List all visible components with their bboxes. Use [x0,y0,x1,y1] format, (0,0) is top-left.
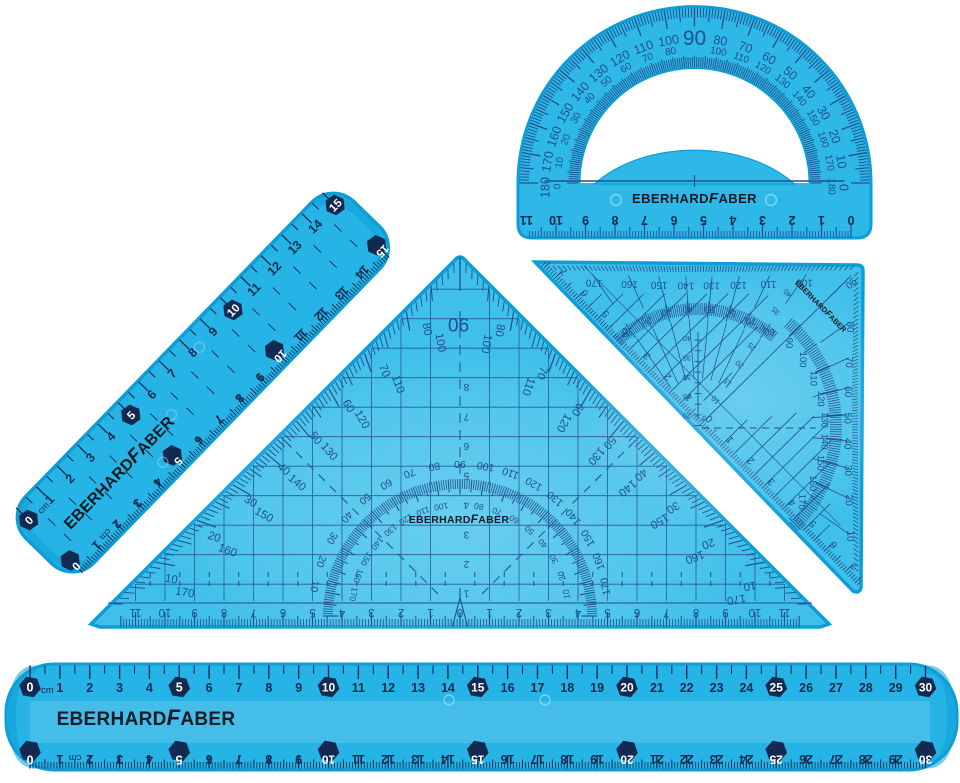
svg-text:90: 90 [783,338,794,349]
svg-text:10: 10 [549,213,563,227]
svg-text:60: 60 [842,386,853,398]
svg-text:3: 3 [368,606,374,618]
svg-text:11: 11 [520,213,533,227]
svg-text:11: 11 [352,752,365,766]
svg-text:80: 80 [420,322,434,337]
svg-text:3: 3 [545,606,551,618]
svg-text:25: 25 [769,753,783,767]
svg-text:2: 2 [398,606,404,618]
svg-text:29: 29 [889,752,903,766]
svg-text:26: 26 [799,681,813,695]
svg-text:20: 20 [620,681,634,695]
svg-text:0: 0 [837,184,851,191]
svg-text:8: 8 [611,213,618,227]
svg-text:30: 30 [842,465,853,477]
svg-text:130: 130 [703,279,720,290]
svg-text:40: 40 [683,334,691,343]
svg-text:0: 0 [457,606,463,618]
svg-text:4: 4 [146,681,153,695]
svg-text:7: 7 [463,411,469,422]
svg-text:4: 4 [729,213,736,227]
svg-text:20: 20 [683,412,691,421]
svg-text:110: 110 [808,371,819,386]
svg-text:21: 21 [650,752,664,766]
svg-text:11: 11 [779,606,791,618]
svg-text:4: 4 [574,606,581,618]
svg-text:25: 25 [770,681,784,695]
svg-text:0: 0 [27,681,34,695]
svg-text:9: 9 [582,213,589,227]
svg-text:12: 12 [381,752,395,766]
svg-text:10: 10 [749,606,762,618]
svg-text:23: 23 [710,681,724,695]
svg-text:1: 1 [56,681,63,695]
svg-text:6: 6 [634,606,640,618]
svg-text:10: 10 [561,588,573,599]
svg-text:22: 22 [680,752,694,766]
svg-text:8: 8 [265,752,272,766]
svg-text:70: 70 [843,356,854,368]
svg-text:19: 19 [590,681,604,695]
svg-text:7: 7 [236,681,243,695]
svg-text:50: 50 [841,412,852,424]
svg-text:cm: cm [41,685,54,696]
svg-text:30: 30 [683,373,691,382]
svg-text:9: 9 [295,681,302,695]
svg-text:23: 23 [710,752,724,766]
svg-text:5: 5 [309,606,315,618]
svg-text:18: 18 [560,752,574,766]
svg-text:20: 20 [620,753,634,767]
svg-text:9: 9 [295,752,302,766]
svg-text:5: 5 [463,470,469,481]
svg-text:90: 90 [683,27,706,50]
svg-text:14: 14 [441,681,455,695]
svg-text:100: 100 [797,351,808,367]
svg-text:12: 12 [381,681,395,695]
svg-text:1: 1 [56,752,63,766]
svg-text:5: 5 [700,213,707,227]
svg-text:10: 10 [844,530,855,542]
svg-text:5: 5 [176,753,183,767]
svg-text:3: 3 [759,213,766,227]
svg-text:0: 0 [553,183,564,189]
svg-text:27: 27 [829,681,843,695]
svg-text:6: 6 [670,213,677,227]
svg-text:1: 1 [463,588,469,599]
svg-text:30: 30 [919,753,933,767]
svg-text:150: 150 [650,279,667,290]
svg-text:10: 10 [322,753,336,767]
svg-text:170: 170 [585,277,602,288]
svg-text:22: 22 [680,681,694,695]
svg-text:28: 28 [859,752,873,766]
svg-text:14: 14 [441,752,455,766]
svg-text:24: 24 [739,752,753,766]
svg-text:8: 8 [221,606,227,618]
svg-text:11: 11 [130,606,142,618]
svg-text:17: 17 [531,681,545,695]
svg-text:11: 11 [352,681,365,695]
svg-text:8: 8 [265,681,272,695]
svg-text:15: 15 [471,681,485,695]
svg-text:10: 10 [322,681,336,695]
svg-text:40: 40 [841,438,852,450]
svg-text:29: 29 [889,681,903,695]
svg-text:2: 2 [86,752,93,766]
svg-text:27: 27 [829,752,843,766]
svg-text:90: 90 [448,313,469,334]
svg-text:2: 2 [788,213,795,227]
svg-text:35: 35 [683,353,691,362]
svg-text:2: 2 [463,558,469,569]
svg-text:30: 30 [919,681,933,695]
svg-text:7: 7 [250,606,256,618]
svg-text:3: 3 [116,681,123,695]
svg-text:10: 10 [307,580,321,594]
svg-text:cm: cm [69,752,82,763]
svg-text:25: 25 [683,392,691,401]
svg-text:6: 6 [280,606,286,618]
svg-text:4: 4 [146,752,153,766]
svg-text:18: 18 [560,681,574,695]
svg-text:7: 7 [641,213,648,227]
svg-text:1: 1 [818,213,825,227]
svg-text:0: 0 [847,213,854,227]
svg-text:4: 4 [463,499,469,510]
svg-text:26: 26 [799,752,813,766]
svg-text:EBERHARDFABER: EBERHARDFABER [57,705,236,730]
svg-text:EBERHARDFABER: EBERHARDFABER [632,190,757,207]
svg-text:8: 8 [693,606,699,618]
svg-text:180: 180 [539,177,553,198]
svg-text:160: 160 [621,278,638,289]
svg-text:9: 9 [191,606,197,618]
svg-text:6: 6 [463,440,469,451]
svg-text:7: 7 [663,606,669,618]
svg-text:EBERHARDFABER: EBERHARDFABER [409,512,510,526]
svg-text:28: 28 [859,681,873,695]
svg-text:3: 3 [116,752,123,766]
svg-text:6: 6 [206,752,213,766]
svg-text:5: 5 [176,681,183,695]
svg-text:20: 20 [843,494,854,506]
svg-text:10: 10 [159,606,172,618]
svg-text:19: 19 [590,752,604,766]
svg-text:4: 4 [338,606,345,618]
svg-text:8: 8 [463,381,469,392]
svg-text:1: 1 [486,606,492,618]
svg-text:21: 21 [650,681,664,695]
svg-text:7: 7 [235,752,242,766]
svg-text:3: 3 [463,529,469,540]
svg-text:110: 110 [760,278,777,289]
svg-text:120: 120 [730,279,747,290]
svg-text:13: 13 [411,752,425,766]
svg-text:9: 9 [722,606,728,618]
svg-text:16: 16 [501,752,515,766]
svg-text:17: 17 [531,752,545,766]
svg-text:140: 140 [677,279,694,290]
svg-text:5: 5 [604,606,610,618]
svg-text:0: 0 [26,753,33,767]
svg-text:2: 2 [86,681,93,695]
svg-text:80: 80 [473,501,484,513]
svg-text:1: 1 [427,606,433,618]
svg-text:24: 24 [739,681,753,695]
svg-text:6: 6 [206,681,213,695]
svg-text:2: 2 [516,606,522,618]
svg-text:15: 15 [471,753,485,767]
svg-text:130: 130 [818,412,829,428]
svg-text:16: 16 [501,681,515,695]
svg-text:13: 13 [411,681,425,695]
